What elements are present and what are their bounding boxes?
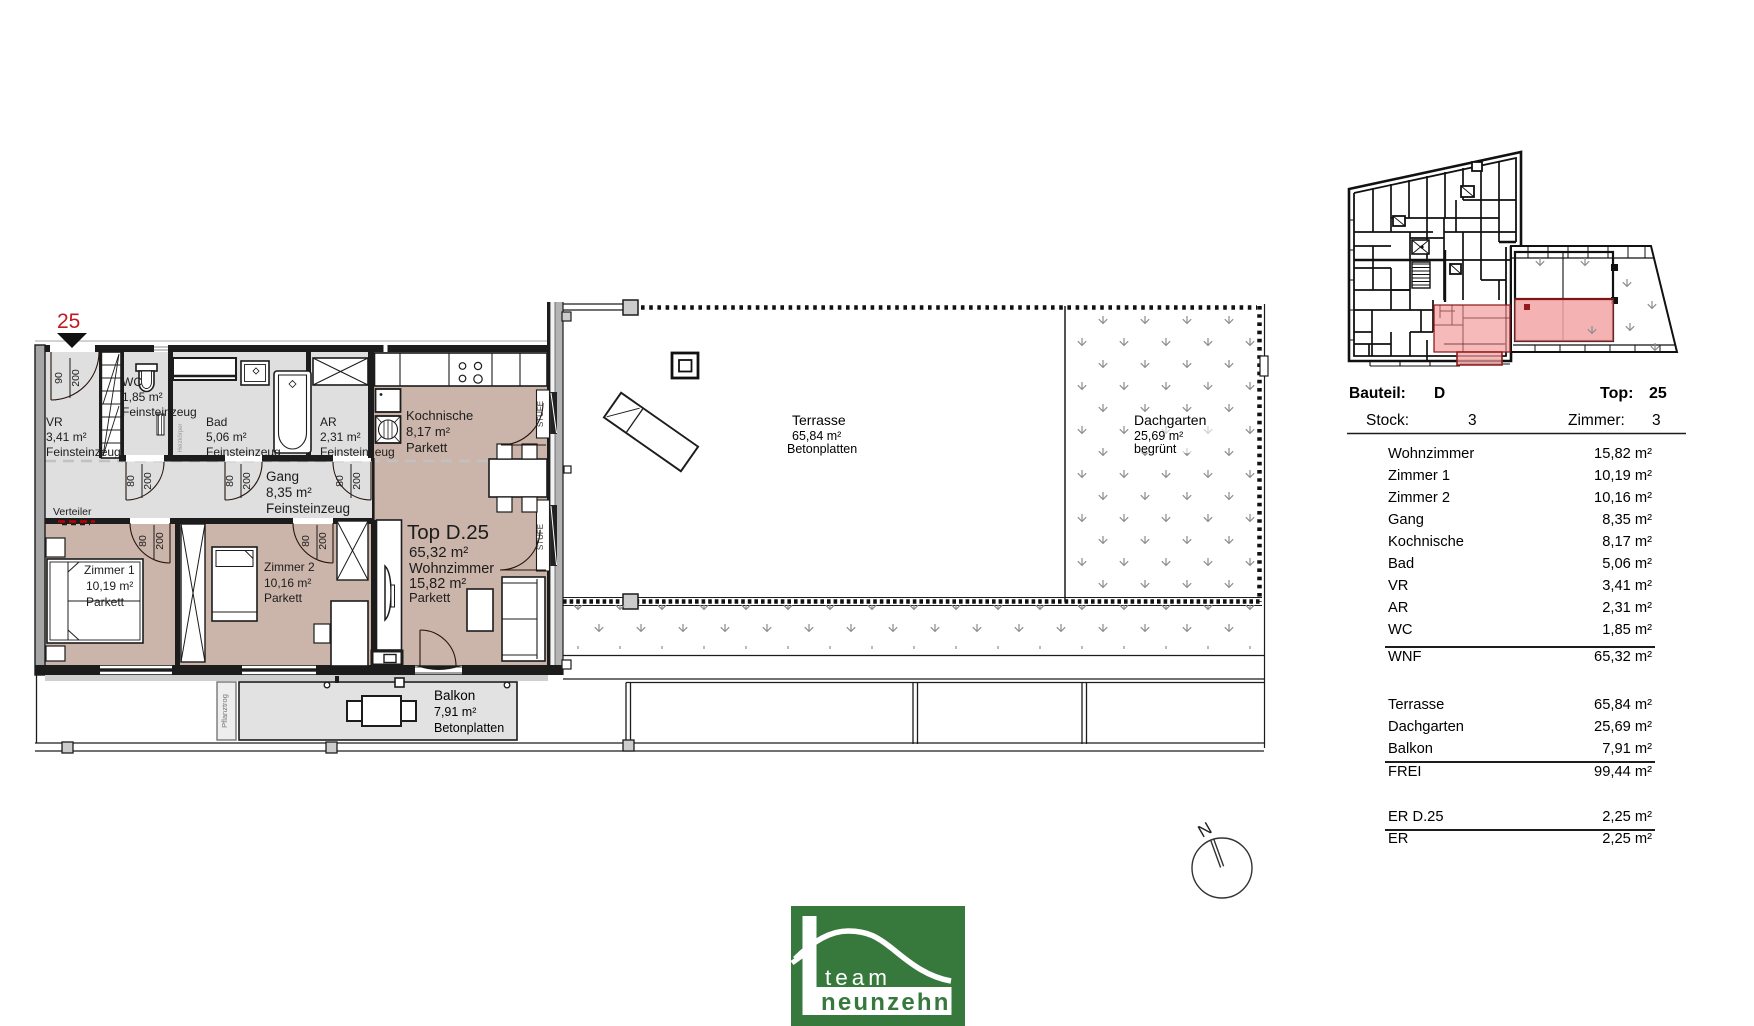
svg-text:2,25 m²: 2,25 m² xyxy=(1602,809,1652,825)
svg-text:3,41 m²: 3,41 m² xyxy=(1602,578,1652,594)
svg-text:WC: WC xyxy=(122,375,142,389)
svg-text:Parkett: Parkett xyxy=(406,440,448,455)
svg-text:neunzehn: neunzehn xyxy=(821,989,951,1016)
svg-text:200: 200 xyxy=(317,532,329,550)
svg-text:65,32 m²: 65,32 m² xyxy=(409,544,468,561)
svg-text:Heizkörper: Heizkörper xyxy=(178,423,184,452)
svg-text:Wohnzimmer: Wohnzimmer xyxy=(409,561,494,577)
svg-text:2,31 m²: 2,31 m² xyxy=(320,430,361,444)
svg-text:8,35 m²: 8,35 m² xyxy=(266,485,312,500)
svg-text:1,85 m²: 1,85 m² xyxy=(122,390,163,404)
svg-text:ER: ER xyxy=(1388,831,1408,847)
svg-text:VR: VR xyxy=(46,415,63,429)
svg-text:FREI: FREI xyxy=(1388,764,1421,780)
svg-text:Terrasse: Terrasse xyxy=(1388,697,1444,713)
svg-text:Bad: Bad xyxy=(1388,556,1414,572)
svg-text:7,91 m²: 7,91 m² xyxy=(434,705,476,719)
svg-text:15,82 m²: 15,82 m² xyxy=(1594,446,1652,462)
svg-text:3,41 m²: 3,41 m² xyxy=(46,430,87,444)
svg-text:WC: WC xyxy=(1388,622,1413,638)
svg-text:10,19 m²: 10,19 m² xyxy=(86,579,133,593)
svg-text:Balkon: Balkon xyxy=(1388,741,1433,757)
svg-text:Wohnzimmer: Wohnzimmer xyxy=(1388,446,1474,462)
svg-text:65,84 m²: 65,84 m² xyxy=(1594,697,1652,713)
svg-text:10,16 m²: 10,16 m² xyxy=(264,576,311,590)
svg-text:Betonplatten: Betonplatten xyxy=(787,442,857,456)
svg-text:team: team xyxy=(825,965,891,990)
svg-text:200: 200 xyxy=(142,472,154,490)
svg-text:1,85 m²: 1,85 m² xyxy=(1602,622,1652,638)
svg-text:begrünt: begrünt xyxy=(1134,442,1177,456)
svg-text:Feinsteinzeug: Feinsteinzeug xyxy=(122,405,197,419)
svg-text:Feinsteinzeug: Feinsteinzeug xyxy=(206,445,281,459)
svg-text:Terrasse: Terrasse xyxy=(792,412,846,428)
svg-text:25: 25 xyxy=(1649,385,1667,402)
svg-text:Betonplatten: Betonplatten xyxy=(434,721,504,735)
svg-text:Balkon: Balkon xyxy=(434,688,475,703)
svg-text:AR: AR xyxy=(1388,600,1408,616)
svg-text:Bad: Bad xyxy=(206,415,227,429)
svg-text:Verteiler: Verteiler xyxy=(53,506,92,518)
svg-text:10,19 m²: 10,19 m² xyxy=(1594,468,1652,484)
svg-text:80: 80 xyxy=(224,475,236,487)
svg-text:Feinsteinzeug: Feinsteinzeug xyxy=(320,445,395,459)
svg-text:5,06 m²: 5,06 m² xyxy=(206,430,247,444)
svg-text:200: 200 xyxy=(154,532,166,550)
svg-text:80: 80 xyxy=(300,535,312,547)
svg-text:65,84 m²: 65,84 m² xyxy=(792,429,841,443)
svg-text:25,69 m²: 25,69 m² xyxy=(1134,429,1183,443)
svg-text:Zimmer 2: Zimmer 2 xyxy=(264,560,315,574)
svg-text:Top D.25: Top D.25 xyxy=(407,521,489,544)
svg-text:ER D.25: ER D.25 xyxy=(1388,809,1444,825)
svg-text:Feinsteinzeug: Feinsteinzeug xyxy=(46,445,121,459)
svg-text:8,17 m²: 8,17 m² xyxy=(406,424,451,439)
svg-text:Parkett: Parkett xyxy=(86,595,125,609)
svg-text:5,06 m²: 5,06 m² xyxy=(1602,556,1652,572)
svg-text:3: 3 xyxy=(1468,412,1477,429)
svg-text:Gang: Gang xyxy=(1388,512,1424,528)
svg-text:Zimmer:: Zimmer: xyxy=(1568,412,1625,429)
svg-text:2,25 m²: 2,25 m² xyxy=(1602,831,1652,847)
svg-text:80: 80 xyxy=(125,475,137,487)
svg-text:Pflanztrog: Pflanztrog xyxy=(220,694,229,728)
svg-text:99,44 m²: 99,44 m² xyxy=(1594,764,1652,780)
svg-text:Kochnische: Kochnische xyxy=(1388,534,1464,550)
svg-text:200: 200 xyxy=(70,369,82,387)
svg-text:2,31 m²: 2,31 m² xyxy=(1602,600,1652,616)
svg-text:Dachgarten: Dachgarten xyxy=(1134,412,1206,428)
svg-text:Parkett: Parkett xyxy=(409,590,451,605)
svg-text:AR: AR xyxy=(320,415,337,429)
svg-text:Parkett: Parkett xyxy=(264,591,303,605)
svg-text:Feinsteinzeug: Feinsteinzeug xyxy=(266,501,350,516)
svg-text:Dachgarten: Dachgarten xyxy=(1388,719,1464,735)
svg-text:8,17 m²: 8,17 m² xyxy=(1602,534,1652,550)
svg-text:80: 80 xyxy=(334,475,346,487)
svg-text:VR: VR xyxy=(1388,578,1408,594)
svg-text:WNF: WNF xyxy=(1388,649,1421,665)
svg-text:Kochnische: Kochnische xyxy=(406,408,473,423)
svg-text:Zimmer 1: Zimmer 1 xyxy=(84,563,135,577)
svg-text:Zimmer 1: Zimmer 1 xyxy=(1388,468,1450,484)
svg-text:8,35 m²: 8,35 m² xyxy=(1602,512,1652,528)
svg-text:3: 3 xyxy=(1652,412,1661,429)
svg-text:65,32 m²: 65,32 m² xyxy=(1594,649,1652,665)
svg-text:D: D xyxy=(1434,385,1445,402)
svg-text:Top:: Top: xyxy=(1600,385,1633,402)
svg-text:Zimmer 2: Zimmer 2 xyxy=(1388,490,1450,506)
svg-text:80: 80 xyxy=(137,535,149,547)
svg-text:Gang: Gang xyxy=(266,469,299,484)
svg-text:25,69 m²: 25,69 m² xyxy=(1594,719,1652,735)
svg-text:STUFE: STUFE xyxy=(536,524,545,550)
svg-text:200: 200 xyxy=(351,472,363,490)
svg-text:200: 200 xyxy=(241,472,253,490)
svg-text:25: 25 xyxy=(57,310,80,333)
svg-text:10,16 m²: 10,16 m² xyxy=(1594,490,1652,506)
svg-text:90: 90 xyxy=(53,372,65,384)
svg-text:Stock:: Stock: xyxy=(1366,412,1409,429)
svg-text:7,91 m²: 7,91 m² xyxy=(1602,741,1652,757)
svg-text:Bauteil:: Bauteil: xyxy=(1349,385,1406,402)
